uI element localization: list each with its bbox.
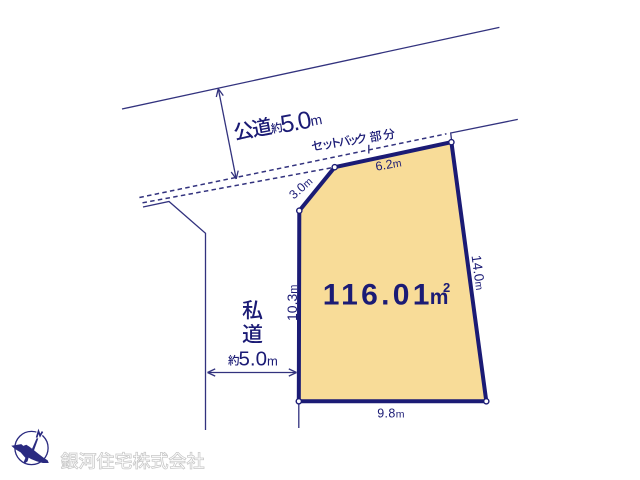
svg-text:9.8m: 9.8m bbox=[377, 407, 405, 421]
svg-text:2: 2 bbox=[443, 280, 450, 295]
svg-text:116.01: 116.01 bbox=[323, 278, 433, 311]
